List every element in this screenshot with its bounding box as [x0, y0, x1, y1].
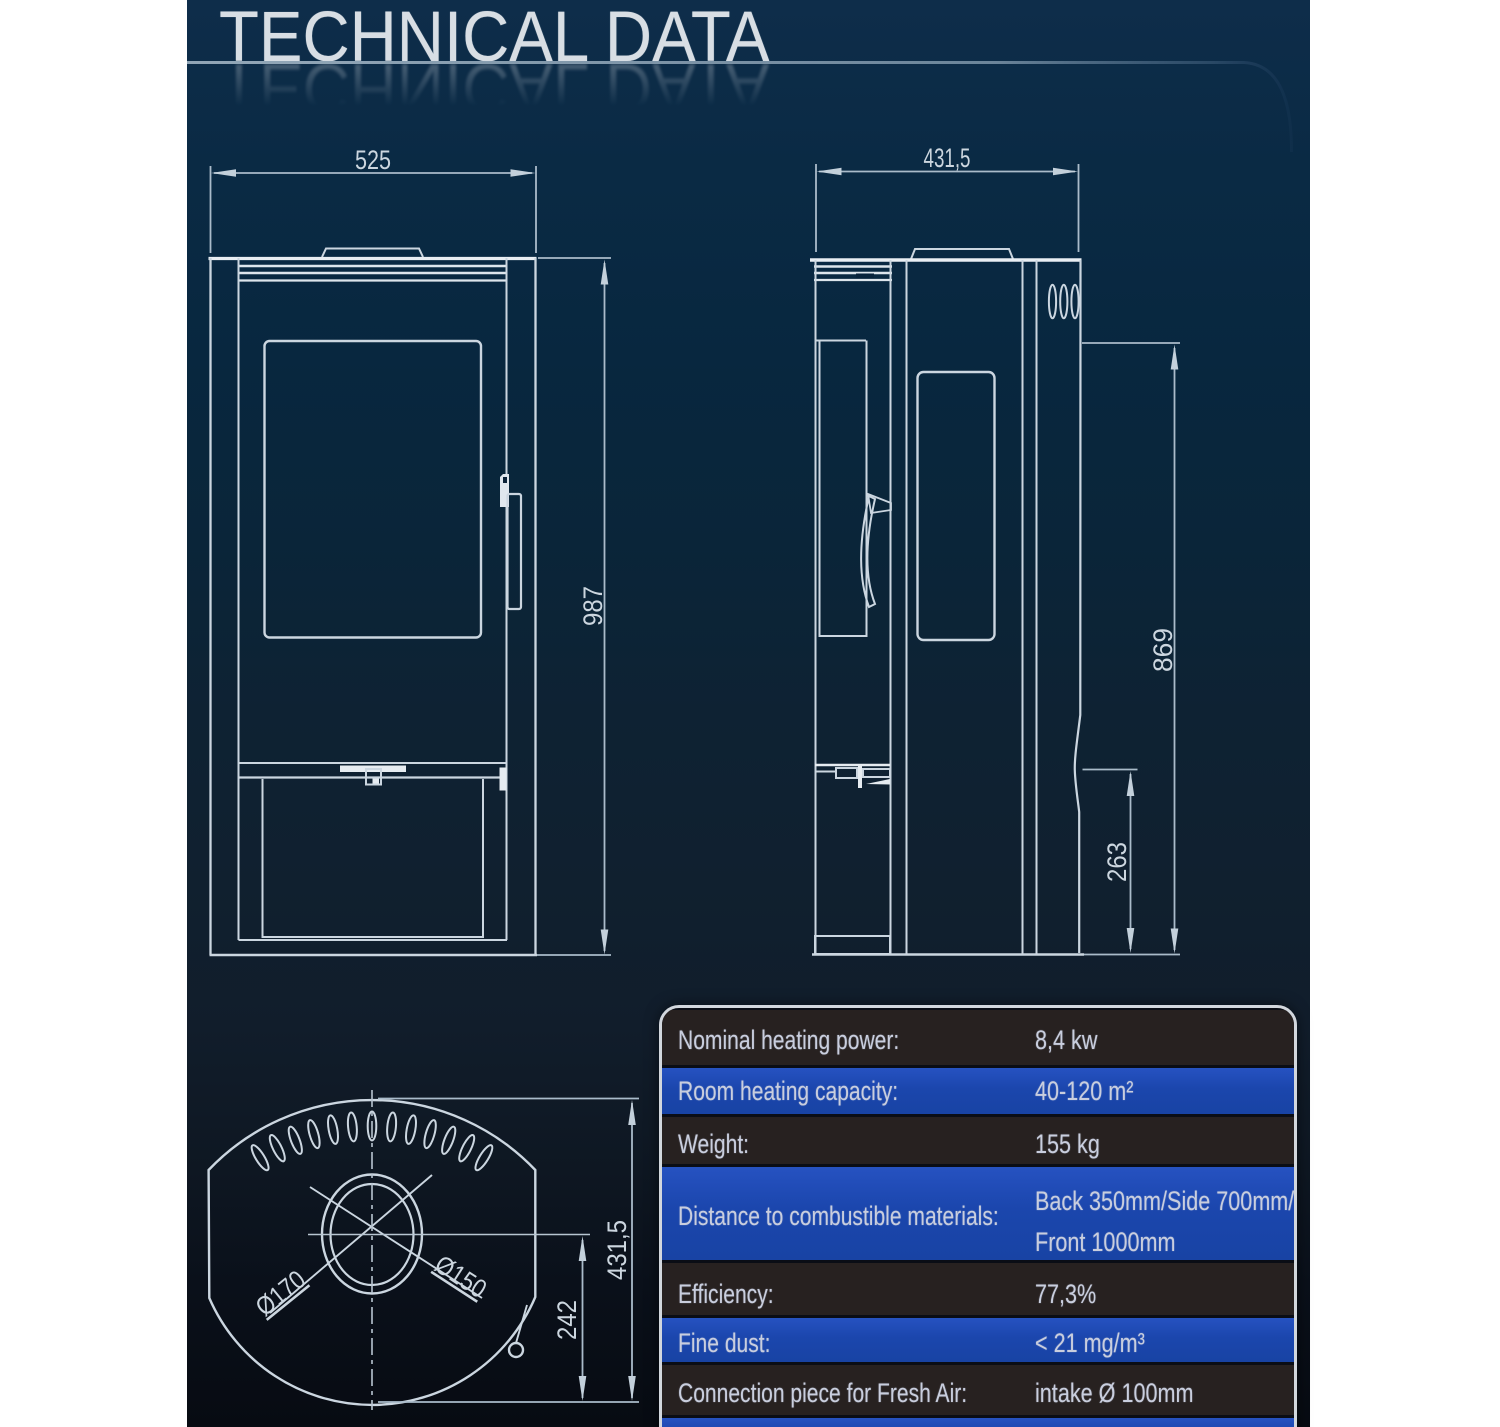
svg-text:525: 525	[355, 145, 391, 175]
svg-text:263: 263	[1102, 842, 1132, 882]
svg-text:869: 869	[1148, 628, 1178, 672]
svg-text:242: 242	[552, 1300, 582, 1340]
svg-text:431,5: 431,5	[924, 143, 971, 173]
svg-text:431,5: 431,5	[602, 1220, 632, 1280]
svg-text:Ø170: Ø170	[250, 1264, 312, 1322]
svg-text:987: 987	[578, 586, 608, 626]
svg-text:Ø150: Ø150	[430, 1249, 492, 1304]
